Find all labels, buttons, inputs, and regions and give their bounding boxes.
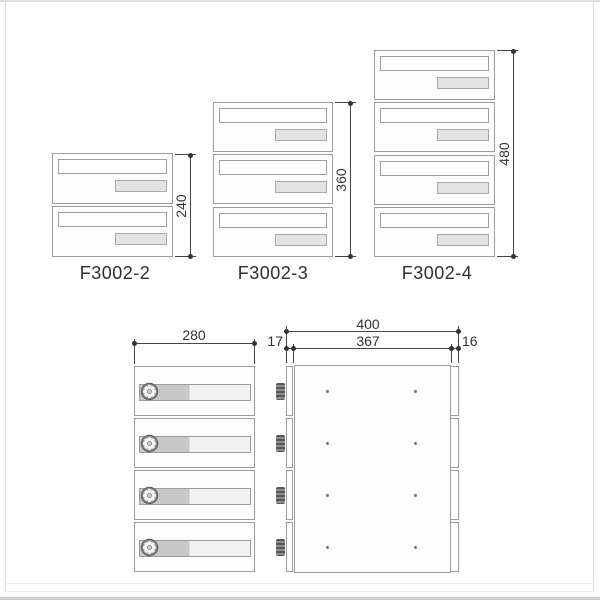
dimension-label-280: 280	[174, 328, 214, 342]
model-label-f3002-2: F3002-2	[70, 264, 160, 282]
name-plate	[275, 234, 327, 246]
mailbox-unit	[213, 154, 333, 204]
mailbox-unit	[52, 206, 173, 257]
screw-hole	[326, 546, 329, 549]
mailbox-unit	[134, 522, 255, 572]
dimension-line-480	[513, 51, 514, 257]
name-plate	[437, 129, 489, 141]
dimension-endpoint	[132, 341, 137, 346]
lock-knob-icon	[276, 487, 285, 504]
name-plate	[437, 77, 489, 89]
mailbox-unit	[374, 102, 495, 152]
lock-knob-icon	[276, 539, 285, 556]
frame-bottom-line	[5, 591, 594, 592]
mail-slot	[380, 213, 489, 228]
model-label-f3002-4: F3002-4	[392, 264, 482, 282]
mailbox-unit	[374, 155, 495, 205]
mailbox-unit	[213, 102, 333, 152]
door-edge-segment	[286, 470, 293, 520]
back-edge-segment	[450, 418, 459, 468]
screw-hole	[414, 390, 417, 393]
dimension-label-400: 400	[348, 317, 388, 331]
dimension-line-240	[190, 155, 191, 257]
mail-slot	[219, 213, 327, 228]
name-plate	[115, 180, 167, 192]
back-edge-segment	[450, 522, 459, 572]
dimension-endpoint	[291, 346, 296, 351]
mailbox-unit	[134, 418, 255, 468]
technical-drawing-canvas: 240 F3002-2 360 F3002-3	[0, 0, 600, 600]
dimension-label-367: 367	[348, 334, 388, 348]
door-edge-segment	[286, 418, 293, 468]
dimension-label-16: 16	[462, 334, 486, 348]
dial-lock-icon	[140, 538, 159, 557]
dimension-label-240: 240	[174, 186, 188, 226]
dimension-endpoint	[511, 254, 516, 259]
dimension-endpoint	[188, 153, 193, 158]
mail-slot	[58, 212, 167, 227]
front-view-f3002-2	[52, 153, 173, 257]
screw-hole	[326, 494, 329, 497]
screw-hole	[326, 390, 329, 393]
mailbox-unit	[374, 207, 495, 257]
lock-knob-icon	[276, 383, 285, 400]
door-edge-segment	[286, 366, 293, 416]
name-plate	[437, 182, 489, 194]
mail-slot	[219, 160, 327, 175]
dial-lock-icon	[140, 486, 159, 505]
mailbox-unit	[213, 207, 333, 257]
screw-hole	[414, 546, 417, 549]
mail-slot	[58, 159, 167, 174]
front-view-f3002-3	[213, 102, 333, 257]
dimension-label-17: 17	[262, 334, 283, 348]
dimension-endpoint	[348, 254, 353, 259]
dimension-endpoint	[449, 346, 454, 351]
dimension-line-280	[134, 343, 255, 344]
back-edge-segment	[450, 366, 459, 416]
dimension-endpoint	[284, 346, 289, 351]
mail-slot	[219, 108, 327, 123]
screw-hole	[414, 494, 417, 497]
mailbox-unit	[134, 366, 255, 416]
dimension-endpoint	[348, 101, 353, 106]
dimension-endpoint	[456, 329, 461, 334]
dimension-endpoint	[511, 49, 516, 54]
frame-left-line	[5, 2, 6, 591]
dimension-line-360	[350, 103, 351, 257]
detail-front-view	[134, 366, 255, 572]
dimension-endpoint	[456, 346, 461, 351]
mailbox-unit	[52, 153, 173, 204]
screw-hole	[414, 442, 417, 445]
mailbox-unit	[374, 50, 495, 100]
frame-right-line	[593, 2, 594, 591]
screw-hole	[326, 442, 329, 445]
dimension-label-480: 480	[497, 134, 511, 174]
name-plate	[115, 233, 167, 245]
name-plate	[437, 234, 489, 246]
frame-inner-bottom-line	[5, 583, 594, 584]
mail-slot	[380, 56, 489, 71]
dimension-endpoint	[284, 329, 289, 334]
model-label-f3002-3: F3002-3	[228, 264, 318, 282]
name-plate	[275, 181, 327, 193]
mail-slot	[380, 108, 489, 123]
door-edge-segment	[286, 522, 293, 572]
name-plate	[275, 129, 327, 141]
dimension-label-360: 360	[334, 160, 348, 200]
dimension-endpoint	[252, 341, 257, 346]
back-edge-segment	[450, 470, 459, 520]
dial-lock-icon	[140, 434, 159, 453]
dimension-endpoint	[188, 254, 193, 259]
lock-knob-icon	[276, 435, 285, 452]
mail-slot	[380, 161, 489, 176]
mailbox-unit	[134, 470, 255, 520]
frame-top-line	[0, 0, 600, 2]
dial-lock-icon	[140, 382, 159, 401]
side-body	[294, 365, 451, 573]
front-view-f3002-4	[374, 50, 495, 257]
